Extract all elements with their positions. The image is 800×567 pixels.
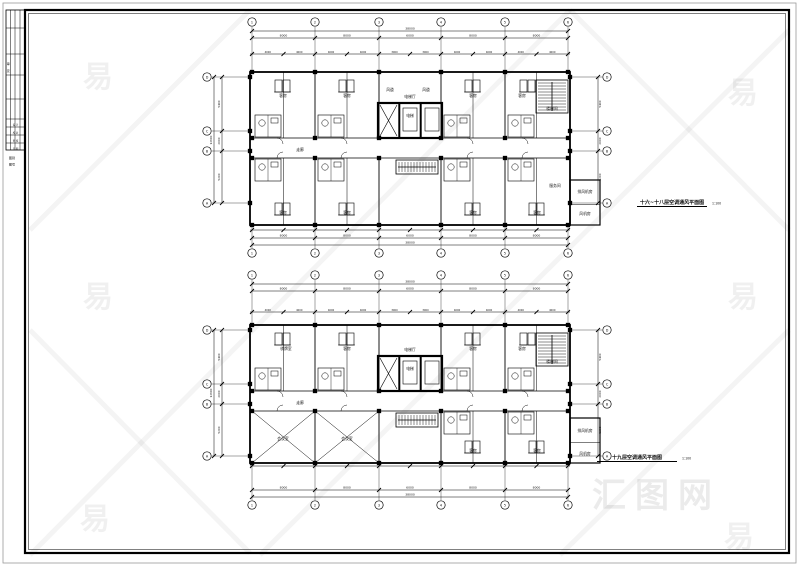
cad-shape bbox=[570, 10, 789, 230]
dim-value: 6000 bbox=[406, 34, 414, 38]
dims-left: 54002000520012600DCBA bbox=[203, 326, 250, 460]
cad-shape bbox=[524, 415, 531, 420]
titleblock: 审定设 计校 对审 核日 期图别图号 bbox=[6, 10, 25, 167]
cad-shape bbox=[503, 323, 507, 327]
room-label: 客房 bbox=[343, 210, 351, 215]
cad-shape bbox=[570, 418, 600, 463]
dim-value: 2000 bbox=[598, 390, 602, 397]
cad-shape bbox=[524, 162, 531, 167]
cad-shape bbox=[347, 80, 354, 92]
dim-value: 8000 bbox=[343, 287, 351, 291]
dim-value: 4000 bbox=[518, 50, 525, 54]
cad-shape bbox=[250, 136, 254, 140]
dim-value: 38000 bbox=[405, 280, 415, 284]
room-label: 排风机房 bbox=[577, 428, 592, 433]
dim-value: 4000 bbox=[518, 308, 525, 312]
floor-plan-16-18: 3800080008000600080008000400040004000400… bbox=[203, 18, 721, 257]
cad-shape bbox=[248, 75, 252, 79]
machine-room-wing bbox=[570, 180, 600, 225]
room-label: 风道 bbox=[386, 87, 394, 92]
cad-shape bbox=[275, 333, 282, 345]
dim-value: 8000 bbox=[280, 234, 288, 238]
fixture bbox=[512, 373, 518, 379]
grid-bubble-label: 5 bbox=[504, 21, 506, 25]
dim-value: 6000 bbox=[406, 287, 414, 291]
cad-shape bbox=[248, 402, 252, 406]
cad-shape bbox=[260, 30, 789, 555]
fixture bbox=[448, 164, 454, 170]
grid-bubble-label: D bbox=[606, 329, 609, 333]
grid-bubble-label: 2 bbox=[314, 252, 316, 256]
cad-shape bbox=[377, 70, 381, 74]
cad-shape bbox=[377, 323, 381, 327]
grid-bubble-label: 6 bbox=[567, 252, 569, 256]
plan-scale: 1:100 bbox=[682, 457, 691, 461]
room-label: 风机房 bbox=[579, 211, 591, 216]
room-label: 客房 bbox=[279, 93, 287, 98]
elevator-core bbox=[378, 103, 442, 138]
room-label: 楼梯间 bbox=[546, 359, 558, 364]
cad-shape bbox=[313, 70, 317, 74]
room-label: 客房 bbox=[469, 210, 477, 215]
dim-value: 4000 bbox=[296, 308, 303, 312]
sheet-frame bbox=[3, 3, 796, 563]
grid-bubble-label: 3 bbox=[378, 21, 380, 25]
dim-value: 4000 bbox=[328, 308, 335, 312]
cad-shape bbox=[377, 223, 381, 227]
cad-shape bbox=[313, 389, 317, 393]
grid-bubble-label: 4 bbox=[440, 252, 442, 256]
dim-value: 8000 bbox=[469, 34, 477, 38]
cad-shape bbox=[313, 156, 317, 160]
cad-shape bbox=[30, 10, 250, 230]
grid-bubble-label: 1 bbox=[251, 21, 253, 25]
cad-shape bbox=[568, 129, 572, 133]
door-arc bbox=[277, 391, 283, 397]
titleblock-cell: 审 核 bbox=[13, 139, 19, 143]
cad-shape bbox=[460, 415, 467, 420]
cad-shape bbox=[503, 136, 507, 140]
cad-shape bbox=[334, 162, 341, 167]
dim-value: 4000 bbox=[296, 50, 303, 54]
room-label: 电梯 bbox=[406, 366, 414, 371]
room-label: 客房 bbox=[343, 346, 351, 351]
grid-bubble-label: 2 bbox=[314, 504, 316, 508]
plan-title: 十九层空调通风平面图 bbox=[612, 454, 662, 461]
room-label: 风道 bbox=[422, 87, 430, 92]
plan-title-group: 十九层空调通风平面图1:100 bbox=[597, 454, 691, 462]
stairs bbox=[396, 80, 568, 174]
door-arc bbox=[467, 152, 473, 158]
dim-value: 8000 bbox=[469, 234, 477, 238]
room-label: 客房 bbox=[469, 448, 477, 453]
cad-shape bbox=[503, 461, 507, 465]
room-label: 服务间 bbox=[549, 183, 561, 188]
room-label: 会议室 bbox=[277, 436, 289, 441]
cad-shape bbox=[566, 156, 570, 160]
cad-shape bbox=[520, 80, 527, 92]
dim-value: 8000 bbox=[280, 486, 288, 490]
cad-shape bbox=[568, 75, 572, 79]
machine-room-wing bbox=[570, 418, 600, 463]
drawing-sheet: 易易易易易易 汇图网 审定设 计校 对审 核日 期图别图号38000800080… bbox=[0, 0, 800, 567]
grid-bubble-label: 3 bbox=[378, 504, 380, 508]
cad-shape bbox=[250, 70, 254, 74]
furniture bbox=[255, 333, 545, 453]
cad-shape bbox=[528, 333, 535, 345]
room-label: 电梯 bbox=[406, 113, 414, 118]
dim-value: 38000 bbox=[405, 241, 415, 245]
cad-shape bbox=[275, 80, 282, 92]
cad-shape bbox=[250, 156, 254, 160]
cad-shape bbox=[568, 402, 572, 406]
cad-shape bbox=[283, 80, 290, 92]
titleblock-cell: 日 期 bbox=[13, 147, 19, 151]
cad-shape bbox=[248, 149, 252, 153]
dim-value: 12600 bbox=[209, 135, 213, 144]
cad-shape bbox=[460, 371, 467, 376]
cad-shape bbox=[568, 382, 572, 386]
fixture bbox=[259, 373, 265, 379]
grid-bubble-label: 5 bbox=[504, 252, 506, 256]
room-label: 棋牌室 bbox=[280, 346, 292, 351]
door-arc bbox=[277, 138, 283, 144]
cad-shape bbox=[334, 371, 341, 376]
cad-shape bbox=[339, 333, 346, 345]
cad-shape bbox=[439, 461, 443, 465]
cad-shape bbox=[30, 10, 570, 555]
dim-value: 6000 bbox=[406, 234, 414, 238]
cad-shape bbox=[524, 371, 531, 376]
grid-bubble-label: 5 bbox=[504, 504, 506, 508]
fixture bbox=[322, 164, 328, 170]
cad-shape bbox=[473, 80, 480, 92]
grid-bubble-label: D bbox=[206, 76, 209, 80]
dim-value: 5400 bbox=[217, 100, 221, 107]
dims-right: 540020005200DCBA bbox=[570, 73, 611, 207]
grid-bubble-label: 4 bbox=[440, 504, 442, 508]
door-arc bbox=[522, 152, 528, 158]
door-arc bbox=[341, 391, 347, 397]
room-labels: 客房客房电梯厅客房客房楼梯间风道风道电梯走廊客房客房客房客房服务间排风机房风机房 bbox=[279, 87, 593, 216]
cad-shape bbox=[439, 223, 443, 227]
grid-bubble-label: 5 bbox=[504, 274, 506, 278]
grid-bubble-label: 4 bbox=[440, 21, 442, 25]
grid-bubble-label: 2 bbox=[314, 21, 316, 25]
room-label: 排风机房 bbox=[577, 189, 592, 194]
dim-value: 5200 bbox=[217, 426, 221, 433]
dim-value: 38000 bbox=[405, 493, 415, 497]
dim-value: 38000 bbox=[405, 27, 415, 31]
stairs bbox=[396, 333, 568, 427]
room-label: 客房 bbox=[469, 93, 477, 98]
dims-top: 3800080008000600080008000400040004000400… bbox=[250, 27, 570, 72]
door-arc bbox=[522, 405, 528, 411]
dim-value: 8000 bbox=[280, 34, 288, 38]
room-label: 电梯厅 bbox=[404, 94, 416, 99]
dims-right: 540020005200DCBA bbox=[570, 326, 611, 460]
grid-bubble-label: 1 bbox=[251, 252, 253, 256]
grid-bubble-label: 3 bbox=[378, 274, 380, 278]
grid-bubble-label: 1 bbox=[251, 274, 253, 278]
cad-shape bbox=[403, 361, 417, 384]
dim-value: 8000 bbox=[533, 287, 541, 291]
door-arc bbox=[467, 391, 473, 397]
grid-bubble-label: 6 bbox=[567, 504, 569, 508]
grid-bubble-label: 3 bbox=[378, 252, 380, 256]
door-arc bbox=[277, 152, 283, 158]
cad-shape bbox=[248, 382, 252, 386]
plan-scale: 1:100 bbox=[712, 202, 721, 206]
dim-value: 4000 bbox=[549, 308, 556, 312]
dim-value: 6000 bbox=[406, 486, 414, 490]
dim-value: 5400 bbox=[217, 353, 221, 360]
cad-shape bbox=[566, 409, 570, 413]
door-arc bbox=[277, 405, 283, 411]
plan-title: 十六~十八层空调通风平面图 bbox=[640, 199, 704, 206]
dim-value: 8000 bbox=[469, 486, 477, 490]
dim-value: 4000 bbox=[486, 50, 493, 54]
room-label: 电梯厅 bbox=[404, 347, 416, 352]
door-arc bbox=[341, 405, 347, 411]
dim-value: 2000 bbox=[217, 390, 221, 397]
fixture bbox=[512, 417, 518, 423]
cad-shape bbox=[339, 80, 346, 92]
plan-title-group: 十六~十八层空调通风平面图1:100 bbox=[637, 199, 721, 207]
cad-shape bbox=[439, 156, 443, 160]
fixture bbox=[512, 120, 518, 126]
grid-bubble-label: 6 bbox=[567, 274, 569, 278]
dim-value: 4000 bbox=[265, 308, 272, 312]
cad-shape bbox=[334, 118, 341, 123]
cad-shape bbox=[377, 156, 381, 160]
dim-value: 3000 bbox=[391, 308, 398, 312]
dims-bottom: 8000800060008000800038000 bbox=[250, 225, 570, 248]
room-label: 客房 bbox=[518, 346, 526, 351]
dim-value: 4000 bbox=[454, 50, 461, 54]
door-arc bbox=[341, 138, 347, 144]
fixture bbox=[322, 373, 328, 379]
cad-shape bbox=[425, 108, 439, 131]
room-label: 客房 bbox=[343, 93, 351, 98]
cad-shape bbox=[566, 323, 570, 327]
room-label: 客房 bbox=[533, 210, 541, 215]
cad-shape bbox=[524, 118, 531, 123]
cad-shape bbox=[3, 3, 796, 563]
dim-value: 8000 bbox=[343, 34, 351, 38]
cad-shape bbox=[313, 136, 317, 140]
cad-drawing: 审定设 计校 对审 核日 期图别图号3800080008000600080008… bbox=[0, 0, 800, 567]
cad-shape bbox=[570, 180, 600, 225]
dims-left: 54002000520012600DCBA bbox=[203, 73, 250, 207]
titleblock-cell: 审 bbox=[7, 61, 10, 66]
cad-shape bbox=[520, 333, 527, 345]
cad-shape bbox=[568, 149, 572, 153]
cad-shape bbox=[283, 333, 290, 345]
room-label: 会议室 bbox=[341, 436, 353, 441]
dim-value: 3000 bbox=[391, 50, 398, 54]
cad-shape bbox=[566, 389, 570, 393]
titleblock-cell: 校 对 bbox=[13, 131, 19, 135]
dim-value: 4000 bbox=[265, 50, 272, 54]
cad-shape bbox=[250, 223, 254, 227]
cad-shape bbox=[439, 409, 443, 413]
door-arc bbox=[467, 138, 473, 144]
grid-bubble-label: 1 bbox=[251, 504, 253, 508]
dim-value: 4000 bbox=[328, 50, 335, 54]
fixture bbox=[448, 373, 454, 379]
dim-value: 8000 bbox=[280, 287, 288, 291]
cad-shape bbox=[528, 80, 535, 92]
columns bbox=[248, 323, 572, 465]
dim-value: 4000 bbox=[549, 50, 556, 54]
dim-value: 4000 bbox=[360, 308, 367, 312]
dim-value: 8000 bbox=[533, 486, 541, 490]
fixture bbox=[259, 120, 265, 126]
dim-value: 2000 bbox=[598, 137, 602, 144]
fixture bbox=[448, 120, 454, 126]
dim-value: 8000 bbox=[469, 287, 477, 291]
room-label: 客房 bbox=[279, 210, 287, 215]
fixture bbox=[322, 120, 328, 126]
cad-shape bbox=[403, 108, 417, 131]
dim-value: 12600 bbox=[209, 388, 213, 397]
dim-value: 3000 bbox=[422, 308, 429, 312]
cad-shape bbox=[568, 328, 572, 332]
room-labels: 棋牌室客房电梯厅客房客房楼梯间电梯走廊会议室会议室客房客房排风机房风机房 bbox=[277, 346, 592, 456]
cad-shape bbox=[271, 371, 278, 376]
cad-shape bbox=[347, 333, 354, 345]
cad-shape bbox=[503, 409, 507, 413]
cad-shape bbox=[503, 70, 507, 74]
door-arc bbox=[467, 405, 473, 411]
dim-value: 5400 bbox=[598, 353, 602, 360]
cad-shape bbox=[248, 201, 252, 205]
cad-shape bbox=[566, 70, 570, 74]
dims-bottom: 8000800060008000800038000 bbox=[250, 463, 570, 500]
grid-bubble-label: 2 bbox=[314, 274, 316, 278]
fixture bbox=[259, 164, 265, 170]
cad-shape bbox=[250, 389, 254, 393]
titleblock-cell: 设 计 bbox=[13, 123, 19, 127]
grid-bubble-label: 6 bbox=[567, 21, 569, 25]
cad-shape bbox=[460, 162, 467, 167]
door-arc bbox=[522, 391, 528, 397]
fixture bbox=[448, 417, 454, 423]
titleblock-cell: 定 bbox=[7, 68, 10, 73]
cad-shape bbox=[271, 162, 278, 167]
room-label: 客房 bbox=[469, 346, 477, 351]
cad-shape bbox=[503, 223, 507, 227]
dim-value: 2000 bbox=[217, 137, 221, 144]
dim-value: 4000 bbox=[360, 50, 367, 54]
room-label: 客房 bbox=[533, 448, 541, 453]
cad-shape bbox=[313, 323, 317, 327]
cad-shape bbox=[313, 223, 317, 227]
dim-value: 8000 bbox=[343, 486, 351, 490]
door-arc bbox=[522, 138, 528, 144]
grid-bubble-label: D bbox=[606, 76, 609, 80]
room-label: 走廊 bbox=[296, 400, 304, 405]
cad-shape bbox=[248, 454, 252, 458]
cad-shape bbox=[503, 156, 507, 160]
dim-value: 8000 bbox=[533, 34, 541, 38]
grid-bubble-label: 4 bbox=[440, 274, 442, 278]
cad-shape bbox=[250, 323, 254, 327]
grid-bubble-label: D bbox=[206, 329, 209, 333]
room-label: 客房 bbox=[518, 93, 526, 98]
dim-value: 4000 bbox=[486, 308, 493, 312]
cad-shape bbox=[439, 70, 443, 74]
cad-shape bbox=[248, 129, 252, 133]
door-arc bbox=[341, 152, 347, 158]
cad-shape bbox=[439, 323, 443, 327]
cad-shape bbox=[503, 389, 507, 393]
cad-shape bbox=[566, 136, 570, 140]
room-label: 风机房 bbox=[579, 451, 591, 456]
dim-value: 5200 bbox=[217, 173, 221, 180]
dim-value: 3000 bbox=[422, 50, 429, 54]
cad-shape bbox=[465, 80, 472, 92]
cad-shape bbox=[248, 328, 252, 332]
room-label: 楼梯间 bbox=[546, 106, 558, 111]
cad-shape bbox=[6, 10, 25, 150]
room-label: 走廊 bbox=[296, 147, 304, 152]
dim-value: 8000 bbox=[533, 234, 541, 238]
titleblock-cell: 图号 bbox=[9, 162, 15, 167]
dim-value: 5400 bbox=[598, 100, 602, 107]
dim-value: 8000 bbox=[343, 234, 351, 238]
titleblock-cell: 图别 bbox=[9, 155, 15, 160]
dim-value: 4000 bbox=[454, 308, 461, 312]
fixture bbox=[512, 164, 518, 170]
cad-shape bbox=[271, 118, 278, 123]
